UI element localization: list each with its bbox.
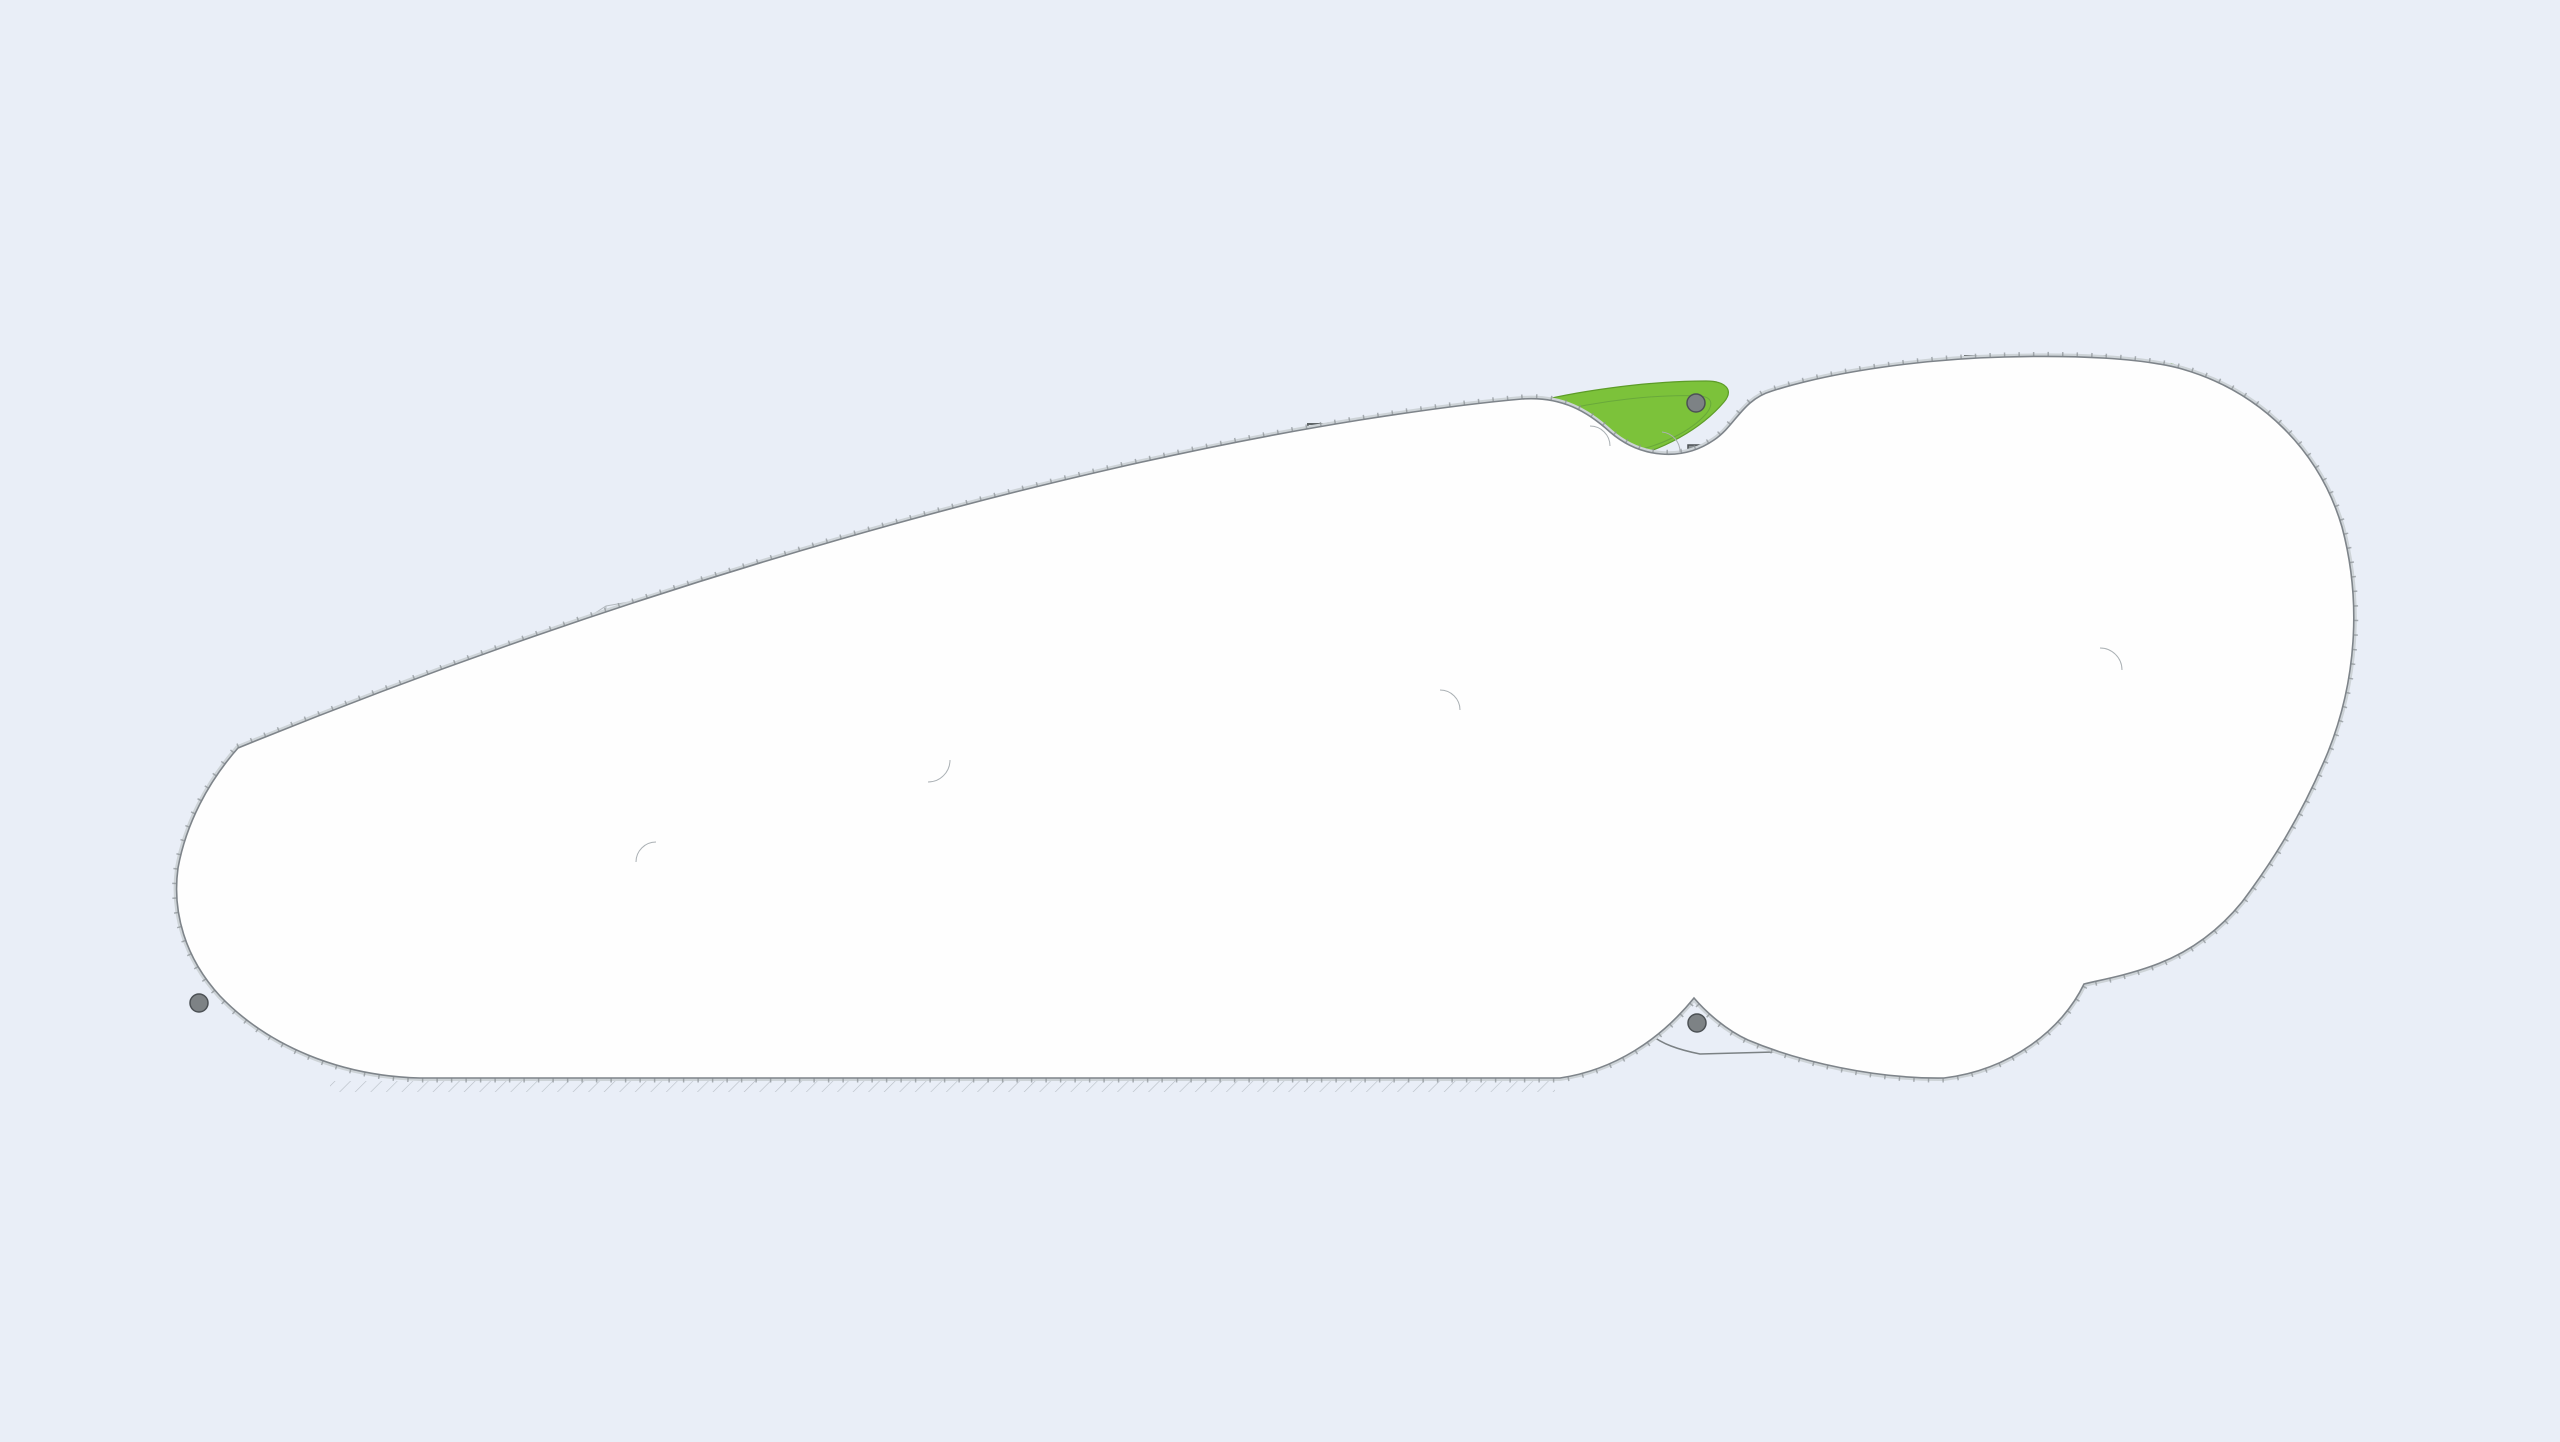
floor-plan-canvas: Staircase to 7/F Staircase to 7/F Pantry… <box>0 0 2560 1442</box>
column <box>1687 394 1705 412</box>
column <box>1688 1014 1706 1032</box>
column <box>190 994 208 1012</box>
facade-bottom-hatch <box>330 1081 1555 1092</box>
